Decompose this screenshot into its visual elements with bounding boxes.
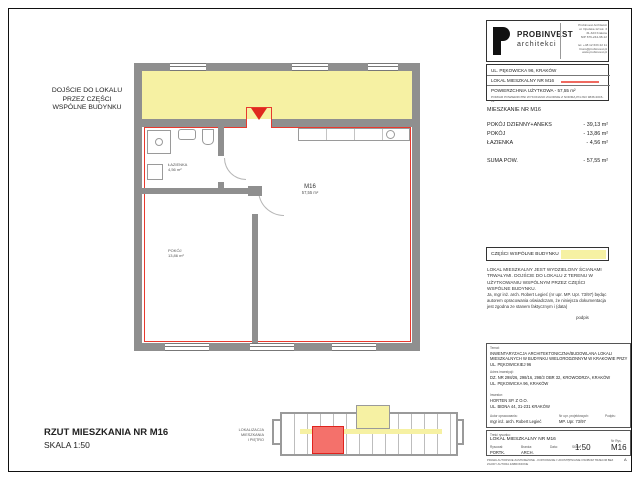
keyplan-left-wing — [272, 419, 282, 445]
inwestor-line1: HORTEN SP. Z O.O. — [490, 398, 628, 403]
contact-line: www.probinvest.pl — [563, 51, 607, 55]
common-parts-legend: CZĘŚCI WSPÓLNE BUDYNKU — [486, 247, 609, 261]
adres-line1: DZ. NR 298/26, 298/16, 298/3 OBR 32, KRO… — [490, 375, 628, 380]
upr-label: Nr upr. projektowych: — [559, 414, 589, 418]
room-value: - 13,86 m² — [583, 131, 608, 137]
sum-label: SUMA POW. — [487, 158, 518, 164]
skala-value: 1:50 — [575, 443, 591, 452]
rysowal-value: PORTK. — [490, 450, 505, 455]
info-area-note: POMIAR POWIERZCHNI WYKONANO ZGODNIE Z NO… — [491, 95, 606, 103]
info-area: POWIERZCHNIA UŻYTKOWA - 57,55 m² — [491, 88, 576, 93]
wall-bedroom-right — [252, 214, 258, 343]
room-schedule-header: MIESZKANIE NR M16 — [487, 107, 608, 113]
unit-area: 57,55 m² — [288, 190, 332, 195]
branza-value: ARCH. — [521, 450, 534, 455]
window-bottom-1 — [165, 343, 209, 351]
access-note-line3: WSPÓLNE BUDYNKU — [40, 104, 134, 113]
podpis-label: Podpis: — [605, 414, 616, 418]
window-bottom-2 — [250, 343, 294, 351]
table-row: ŁAZIENKA - 4,56 m² — [487, 140, 608, 146]
window-top-2 — [292, 63, 328, 71]
bedroom-area: 13,86 m² — [168, 253, 184, 258]
room-schedule: MIESZKANIE NR M16 POKÓJ DZIENNY+ANEKS - … — [487, 107, 608, 164]
signature-label: podpis — [560, 315, 605, 320]
common-parts-label: CZĘŚCI WSPÓLNE BUDYNKU — [491, 252, 559, 257]
shower-drain-icon — [155, 138, 163, 146]
room-label: POKÓJ DZIENNY+ANEKS — [487, 122, 552, 128]
info-divider-1 — [487, 75, 610, 76]
lokal-boundary-swatch — [561, 81, 599, 83]
washbasin-fixture — [178, 129, 196, 140]
entrance-marker-triangle — [251, 108, 267, 120]
keyplan-right-wing — [456, 419, 464, 445]
sum-value: - 57,55 m² — [583, 158, 608, 164]
inwestor-line2: UL. BIDNA 44, 31-231 KRAKÓW — [490, 404, 628, 409]
wall-right — [412, 63, 420, 351]
tresc-label: Treść rysunku: — [490, 433, 511, 437]
logo-box: PROBINVEST architekci Probinvest Archite… — [486, 20, 609, 62]
drawing-scale: SKALA 1:50 — [44, 440, 168, 450]
room-label: POKÓJ — [487, 131, 505, 137]
temat-label: Temat: — [490, 346, 500, 350]
copyright-footnote: PRAWA AUTORSKIE ZASTRZEŻONE - KOPIOWANIE… — [487, 458, 621, 466]
logo-contact: Probinvest Architekci ul. Opolska 12 lok… — [563, 24, 607, 55]
table-row: POKÓJ - 13,86 m² — [487, 131, 608, 137]
window-bottom-3 — [332, 343, 376, 351]
upr-value: MP. Upr. 73/97 — [559, 419, 586, 424]
logo-sub: architekci — [517, 41, 557, 48]
probinvest-logo-icon — [493, 27, 511, 55]
room-label: ŁAZIENKA — [487, 140, 513, 146]
unit-label: M16 57,55 m² — [288, 184, 332, 195]
statement-2: Ja, mgr inż. arch. Robert Legieć (nr upr… — [487, 292, 609, 309]
info-address: UL. PĘKOWICKA 96, KRAKÓW — [491, 68, 556, 73]
bathroom-label: ŁAZIENKA 4,56 m² — [168, 162, 187, 172]
keyplan-caption-line3: I PIĘTRO — [224, 438, 264, 443]
logo-divider — [560, 23, 561, 59]
access-note-line1: DOJŚCIE DO LOKALU — [40, 87, 134, 96]
key-plan — [270, 403, 466, 459]
keyplan-caption: LOKALIZACJA MIESZKANIA I PIĘTRO — [224, 428, 264, 442]
tresc-value: LOKAL MIESZKALNY NR M16 — [490, 437, 556, 442]
lokal-info-box: UL. PĘKOWICKA 96, KRAKÓW LOKAL MIESZKALN… — [486, 64, 609, 101]
bedroom-label: POKÓJ 13,86 m² — [168, 248, 184, 258]
drawing-title: RZUT MIESZKANIA NR M16 — [44, 427, 168, 438]
lokal-boundary-red — [144, 127, 411, 342]
washer-fixture — [147, 164, 163, 180]
room-value: - 39,13 m² — [583, 122, 608, 128]
table-row-sum: SUMA POW. - 57,55 m² — [487, 158, 608, 164]
temat-text: INWENTARYZACJA ARCHITEKTONICZNA/BUDOWLAN… — [490, 351, 628, 367]
wall-pier — [248, 186, 262, 196]
statement-1: LOKAL MIESZKALNY JEST WYDZIELONY ŚCIANAM… — [487, 267, 609, 293]
corridor-common-area — [136, 70, 418, 120]
window-top-3 — [368, 63, 398, 71]
room-value: - 4,56 m² — [586, 140, 608, 146]
adres-line2: UL. PĘKOWICKA 96, KRAKÓW — [490, 381, 628, 386]
window-top-1 — [170, 63, 206, 71]
project-info-block: Temat: INWENTARYZACJA ARCHITEKTONICZNA/B… — [486, 343, 631, 428]
autor-value: mgr inż. arch. Robert Legieć — [490, 419, 541, 424]
nr-value: M16 — [611, 443, 627, 452]
kitchen-sink-icon — [386, 130, 395, 139]
wall-left — [134, 63, 142, 351]
format-label: A — [624, 457, 627, 462]
access-note: DOJŚCIE DO LOKALU PRZEZ CZĘŚCI WSPÓLNE B… — [40, 87, 134, 113]
bathroom-area: 4,56 m² — [168, 167, 187, 172]
keyplan-highlighted-unit — [312, 426, 344, 454]
drawing-sheet: { "colors": {"common_yellow":"#f6f1a3","… — [0, 0, 640, 480]
inwestor-label: Inwestor: — [490, 393, 503, 397]
autor-label: Autor opracowania: — [490, 414, 517, 418]
rysowal-label: Rysował: — [490, 445, 503, 449]
access-note-line2: PRZEZ CZĘŚCI — [40, 96, 134, 105]
adres-label: Adres inwestycji: — [490, 370, 514, 374]
info-divider-2 — [487, 85, 610, 86]
wall-bathroom-bottom — [142, 188, 248, 194]
keyplan-core — [356, 405, 390, 429]
branza-label: Branża: — [521, 445, 532, 449]
drawing-info-block: Treść rysunku: LOKAL MIESZKALNY NR M16 R… — [486, 430, 631, 456]
common-parts-swatch — [561, 250, 606, 259]
wall-apartment-top — [134, 119, 420, 127]
info-lokal: LOKAL MIESZKALNY NR M16 — [491, 78, 554, 83]
drawing-title-block: RZUT MIESZKANIA NR M16 SKALA 1:50 — [44, 427, 168, 450]
bathroom-door-gap — [218, 156, 224, 182]
data-label: Data: — [550, 445, 558, 449]
table-row: POKÓJ DZIENNY+ANEKS - 39,13 m² — [487, 122, 608, 128]
toilet-fixture — [202, 129, 214, 145]
